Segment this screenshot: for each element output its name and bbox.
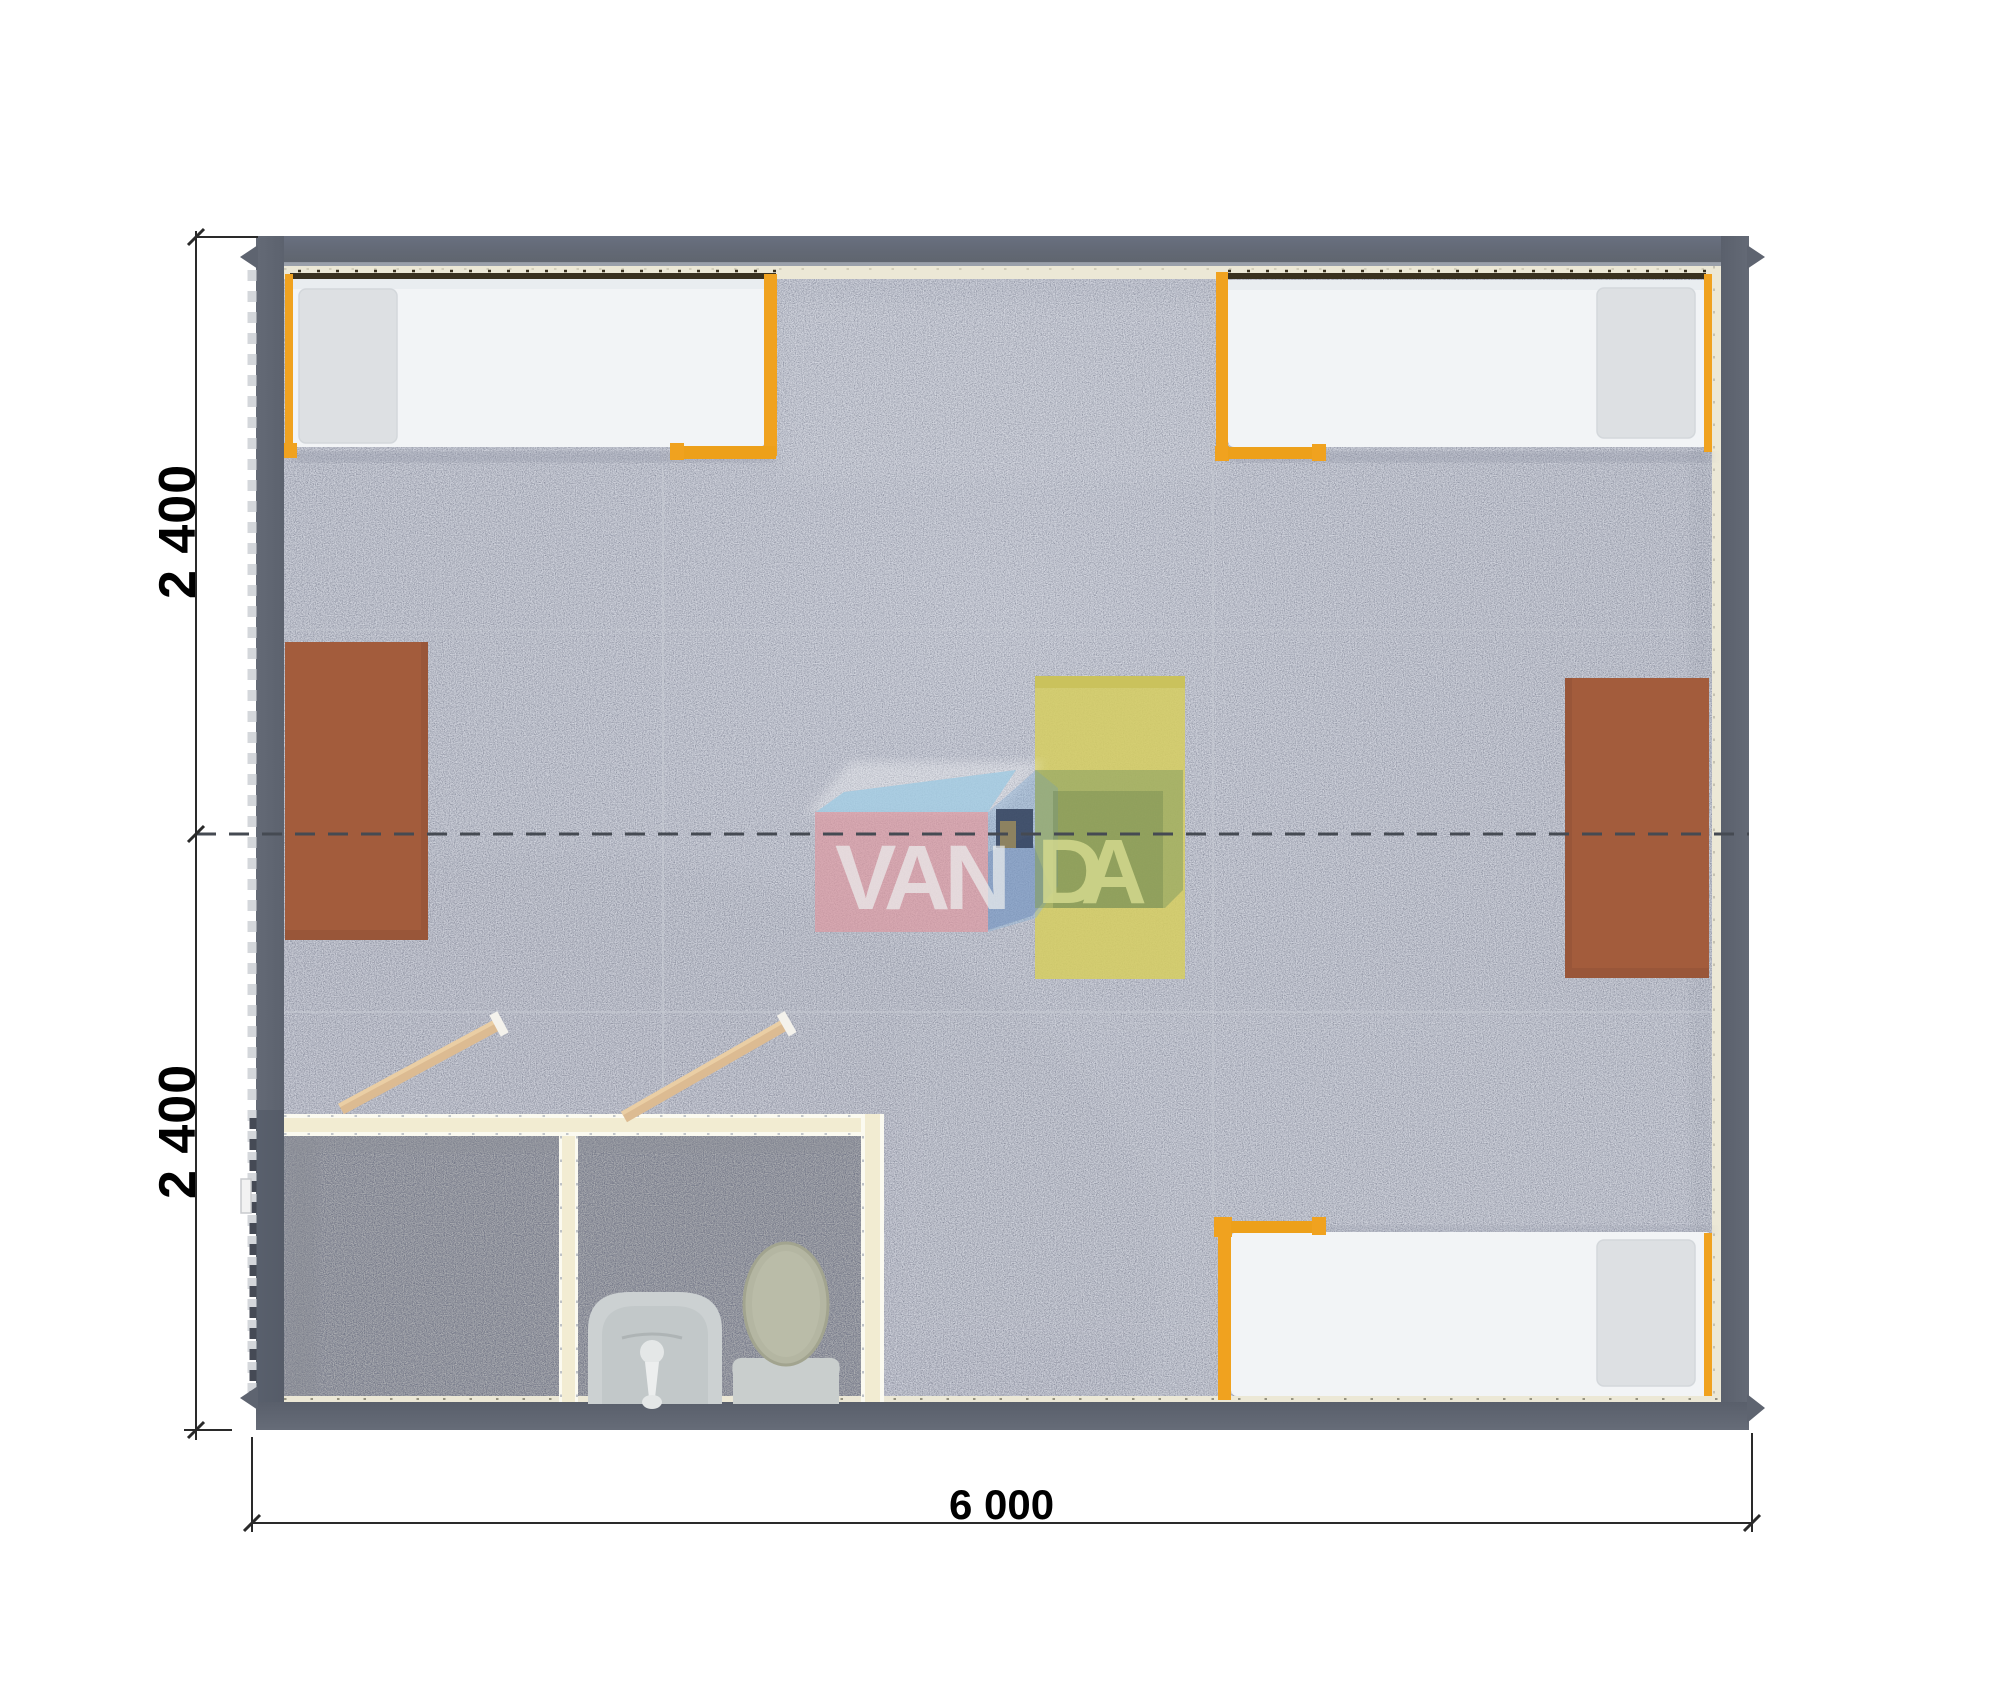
svg-text:2 400: 2 400 bbox=[149, 464, 207, 599]
svg-text:2 400: 2 400 bbox=[149, 1064, 207, 1199]
svg-text:VAN: VAN bbox=[835, 827, 1011, 929]
svg-text:6 000: 6 000 bbox=[949, 1481, 1054, 1528]
svg-text:DA: DA bbox=[1037, 821, 1147, 923]
